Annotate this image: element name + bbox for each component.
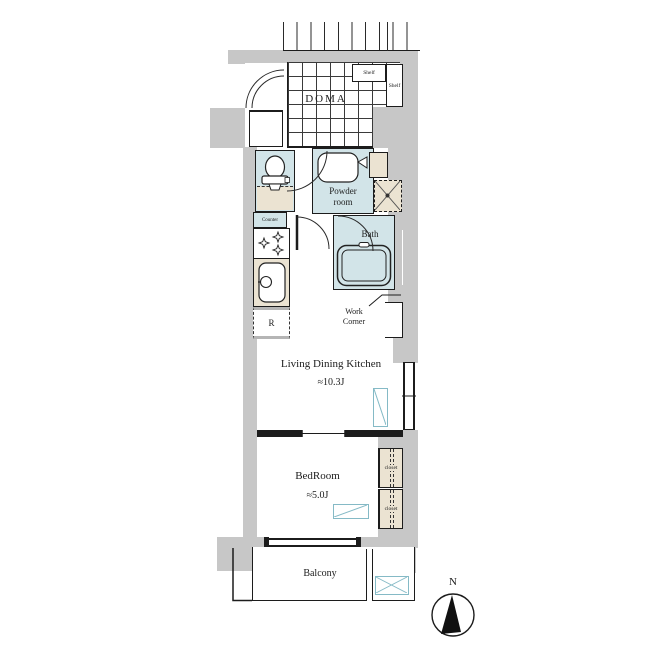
counter-label: Counter xyxy=(254,218,286,224)
shelf-top: Shelf xyxy=(352,64,386,82)
closet-lower-label: closet xyxy=(380,506,402,512)
washing-machine-space xyxy=(374,180,402,212)
compass-north-label: N xyxy=(425,576,481,589)
bedroom-name: BedRoom xyxy=(257,470,378,483)
wall-below-work-corner xyxy=(393,336,418,363)
wall-right-upper xyxy=(402,52,418,362)
ac-unit-space xyxy=(375,576,409,595)
bath-label: Bath xyxy=(345,229,395,239)
divider-wall-left xyxy=(257,430,302,437)
refrigerator-space: R xyxy=(253,307,290,339)
wall-bottom-left-block xyxy=(217,537,253,571)
ldk-window-symbol xyxy=(373,388,388,427)
compass-rose-icon xyxy=(425,589,481,641)
closet-lower: closet xyxy=(378,489,403,529)
compass: N xyxy=(425,576,481,642)
refrigerator-label: R xyxy=(254,318,289,328)
doma-label: DOMA xyxy=(295,93,357,106)
floor-plan: Shelf Shelf DOMA Living Dining Kitchen ≈… xyxy=(0,0,653,653)
wall-right-lower xyxy=(402,430,418,548)
entry-porch xyxy=(249,110,283,147)
powder-sink-icon xyxy=(315,150,369,187)
shelf-side-label: Shelf xyxy=(383,83,406,89)
kitchen-sink-icon xyxy=(257,261,287,304)
shelf-top-label: Shelf xyxy=(353,70,385,76)
powder-room-label-1: Powder xyxy=(312,186,374,196)
corridor-railing xyxy=(283,22,420,51)
toilet-icon xyxy=(256,154,294,196)
divider-wall-right xyxy=(345,430,403,437)
shelf-side: Shelf xyxy=(386,64,403,107)
corridor-railing-double-line xyxy=(387,22,388,51)
closet-upper: closet xyxy=(378,448,403,488)
bedroom-size: ≈5.0J xyxy=(257,490,378,502)
work-corner-label-1: Work xyxy=(330,307,378,316)
bedroom-window-symbol xyxy=(333,504,369,519)
balcony-window xyxy=(268,538,357,547)
work-corner-niche xyxy=(385,302,403,338)
bathtub-icon xyxy=(336,241,392,288)
work-corner-label-2: Corner xyxy=(330,317,378,326)
ldk-name: Living Dining Kitchen xyxy=(258,358,404,371)
wall-above-work-corner xyxy=(393,285,418,303)
stove-burners-icon xyxy=(255,230,288,257)
balcony-label: Balcony xyxy=(260,568,380,580)
ldk-side-window xyxy=(403,362,415,430)
bedroom xyxy=(257,437,378,537)
ldk-size: ≈10.3J xyxy=(258,377,404,389)
powder-room-label-2: room xyxy=(312,197,374,207)
counter-box: Counter xyxy=(253,212,287,228)
balcony-divider xyxy=(366,549,373,601)
closet-upper-label: closet xyxy=(380,465,402,471)
powder-cabinet xyxy=(369,152,388,178)
wall-doma-right xyxy=(373,107,418,148)
